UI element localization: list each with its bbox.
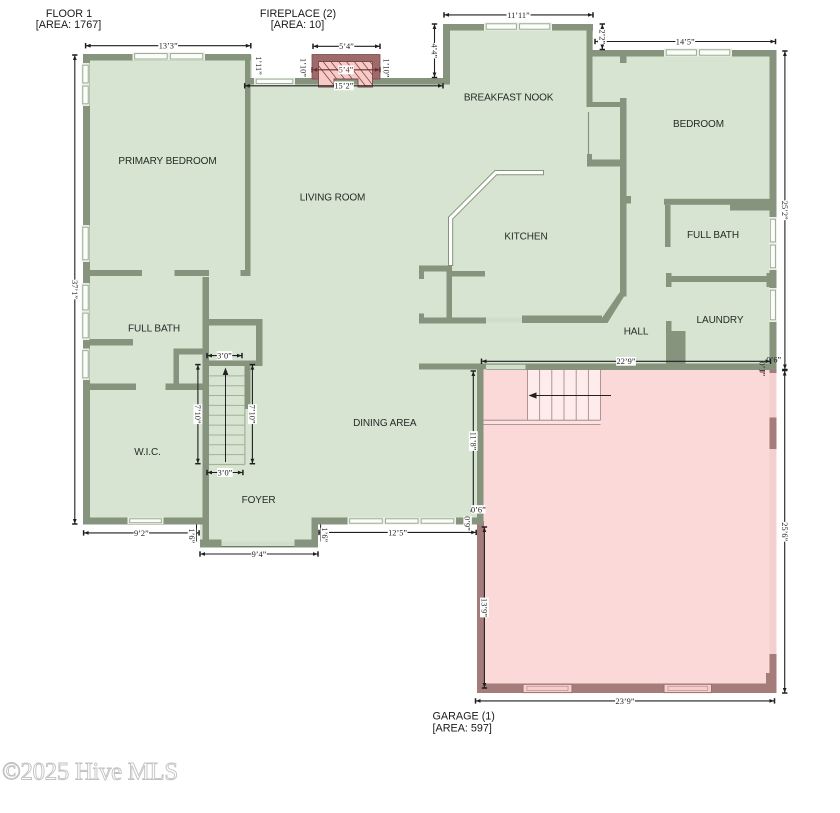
svg-text:HALL: HALL	[624, 327, 649, 338]
svg-text:14’5”: 14’5”	[676, 37, 695, 46]
svg-text:LAUNDRY: LAUNDRY	[697, 315, 744, 326]
svg-text:15’2”: 15’2”	[334, 82, 353, 91]
svg-text:1’11”: 1’11”	[254, 56, 263, 75]
svg-text:0’9”: 0’9”	[463, 516, 472, 531]
svg-text:11’11”: 11’11”	[507, 11, 530, 20]
svg-text:37’1”: 37’1”	[70, 280, 79, 299]
svg-text:FULL BATH: FULL BATH	[687, 230, 739, 241]
svg-text:GARAGE (1): GARAGE (1)	[433, 710, 495, 722]
svg-text:1’6”: 1’6”	[320, 527, 329, 542]
svg-text:W.I.C.: W.I.C.	[134, 447, 161, 458]
svg-text:25’2”: 25’2”	[780, 201, 789, 220]
svg-text:12’5”: 12’5”	[388, 528, 407, 537]
svg-text:©2025 Hive MLS: ©2025 Hive MLS	[2, 759, 178, 786]
svg-text:5’4”: 5’4”	[339, 66, 354, 75]
svg-text:0’6”: 0’6”	[766, 356, 781, 365]
svg-text:[AREA: 10]: [AREA: 10]	[271, 19, 324, 31]
svg-text:1’10”: 1’10”	[382, 59, 391, 78]
svg-text:25’6”: 25’6”	[780, 522, 789, 541]
svg-text:1’10”: 1’10”	[299, 58, 308, 77]
svg-text:FIREPLACE (2): FIREPLACE (2)	[260, 8, 336, 20]
svg-text:[AREA: 1767]: [AREA: 1767]	[36, 19, 101, 31]
svg-text:1’6”: 1’6”	[187, 528, 196, 543]
svg-text:FLOOR 1: FLOOR 1	[46, 8, 92, 20]
svg-text:9’2”: 9’2”	[134, 529, 149, 538]
svg-text:9’4”: 9’4”	[252, 550, 267, 559]
svg-text:KITCHEN: KITCHEN	[504, 232, 547, 243]
svg-text:[AREA: 597]: [AREA: 597]	[433, 723, 492, 735]
svg-text:13’9”: 13’9”	[480, 598, 489, 617]
svg-text:13’3”: 13’3”	[159, 42, 178, 51]
svg-text:FULL BATH: FULL BATH	[128, 324, 180, 335]
svg-text:3’0”: 3’0”	[218, 468, 233, 477]
svg-text:3’0”: 3’0”	[217, 352, 232, 361]
svg-text:DINING AREA: DINING AREA	[353, 418, 417, 429]
svg-text:2’2”: 2’2”	[597, 29, 606, 44]
svg-text:FOYER: FOYER	[242, 495, 276, 506]
svg-text:BREAKFAST NOOK: BREAKFAST NOOK	[464, 93, 554, 104]
svg-text:22’9”: 22’9”	[617, 357, 636, 366]
svg-text:23’9”: 23’9”	[616, 697, 635, 706]
svg-text:BEDROOM: BEDROOM	[673, 119, 724, 130]
svg-text:0’1”: 0’1”	[758, 361, 767, 376]
svg-text:0’6”: 0’6”	[471, 505, 486, 514]
svg-text:11’8”: 11’8”	[468, 432, 477, 451]
svg-text:LIVING ROOM: LIVING ROOM	[300, 192, 366, 203]
svg-text:PRIMARY BEDROOM: PRIMARY BEDROOM	[118, 156, 216, 167]
svg-text:7’10”: 7’10”	[193, 405, 202, 424]
svg-text:5’4”: 5’4”	[339, 42, 354, 51]
svg-text:4’4”: 4’4”	[430, 43, 439, 58]
svg-text:7’10”: 7’10”	[248, 405, 257, 424]
